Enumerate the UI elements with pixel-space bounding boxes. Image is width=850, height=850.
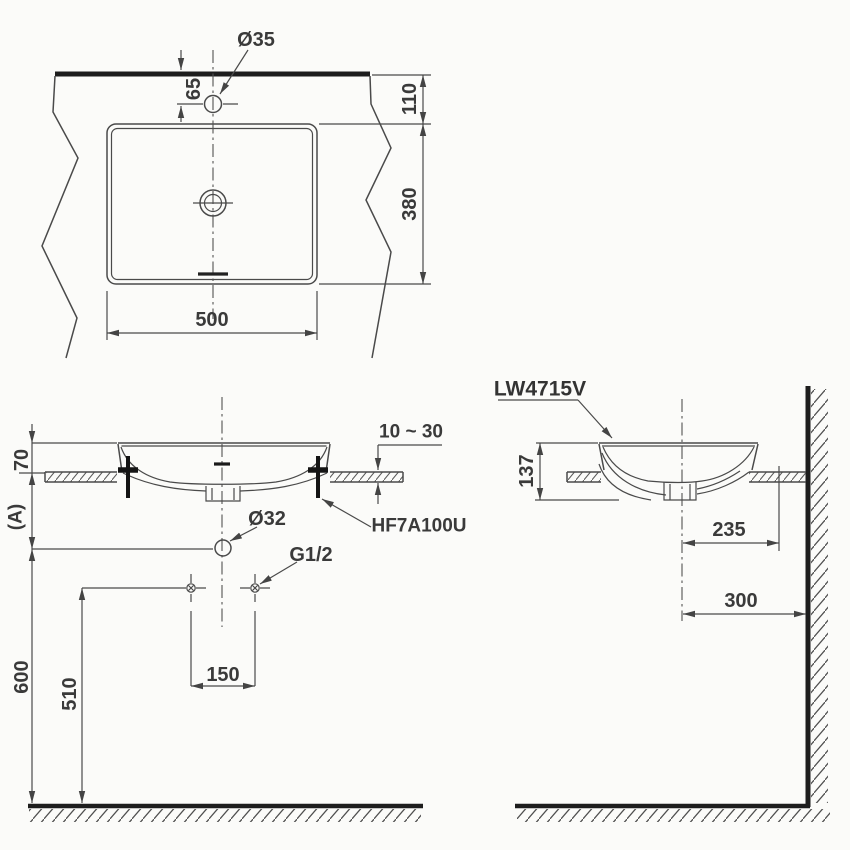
side-bowl-inner-curve	[603, 447, 754, 483]
bowl-underside-curve	[123, 473, 327, 491]
drain-trap-side	[664, 482, 696, 500]
front-view: 70 (A) 600 510 150 Ø32 G1/2 HF7A100U 10 …	[6, 397, 467, 822]
drain-outlet-hole	[215, 540, 231, 556]
drain-to-wall-label: 235	[712, 519, 745, 541]
drain-trap-front	[206, 486, 240, 501]
counter-hatch-right	[330, 473, 403, 482]
floor-hatch-front	[29, 809, 421, 822]
basin-rim-and-walls	[118, 443, 330, 472]
bowl-inner-curve	[121, 447, 327, 484]
side-view: LW4715V 137 235 300	[494, 378, 830, 823]
faucet-offset-label: 65	[183, 78, 205, 100]
mounting-kit-label: HF7A100U	[371, 516, 466, 537]
drain-height-label: 600	[11, 660, 33, 693]
side-basin-rim-and-walls	[599, 443, 758, 470]
counter-thickness-label: 10 ~ 30	[379, 422, 443, 443]
basin-outer-outline	[107, 124, 317, 284]
mounting-kit-leader	[322, 499, 371, 527]
drawing-canvas: Ø35 65 110 380 500	[0, 0, 850, 850]
drain-dia-label: Ø32	[248, 508, 286, 530]
basin-width-label: 500	[195, 309, 228, 331]
basin-height-label: 137	[516, 454, 538, 487]
counter-hatch-left	[46, 473, 117, 482]
basin-inner-outline	[112, 129, 313, 280]
supply-thread-label: G1/2	[289, 544, 332, 566]
wall-hatch	[811, 389, 828, 803]
model-label-leader	[578, 400, 612, 438]
basin-depth-label: 380	[399, 187, 421, 220]
ledge-depth-label: 110	[399, 83, 421, 115]
top-view: Ø35 65 110 380 500	[42, 29, 431, 358]
floor-hatch-side	[517, 809, 830, 822]
side-counter-hatch-right	[749, 473, 806, 482]
model-label: LW4715V	[494, 378, 586, 401]
side-counter-hatch-left	[567, 473, 601, 482]
counter-to-drain-label: (A)	[6, 504, 27, 530]
rim-height-label: 70	[11, 449, 33, 471]
faucet-dia-label: Ø35	[237, 29, 275, 51]
side-bowl-underside-curves	[599, 453, 749, 500]
technical-drawing: Ø35 65 110 380 500	[0, 0, 850, 850]
center-to-wall-label: 300	[724, 590, 757, 612]
supply-height-label: 510	[59, 677, 81, 710]
front-reference-lines	[19, 443, 213, 588]
supply-spacing-label: 150	[206, 664, 239, 686]
